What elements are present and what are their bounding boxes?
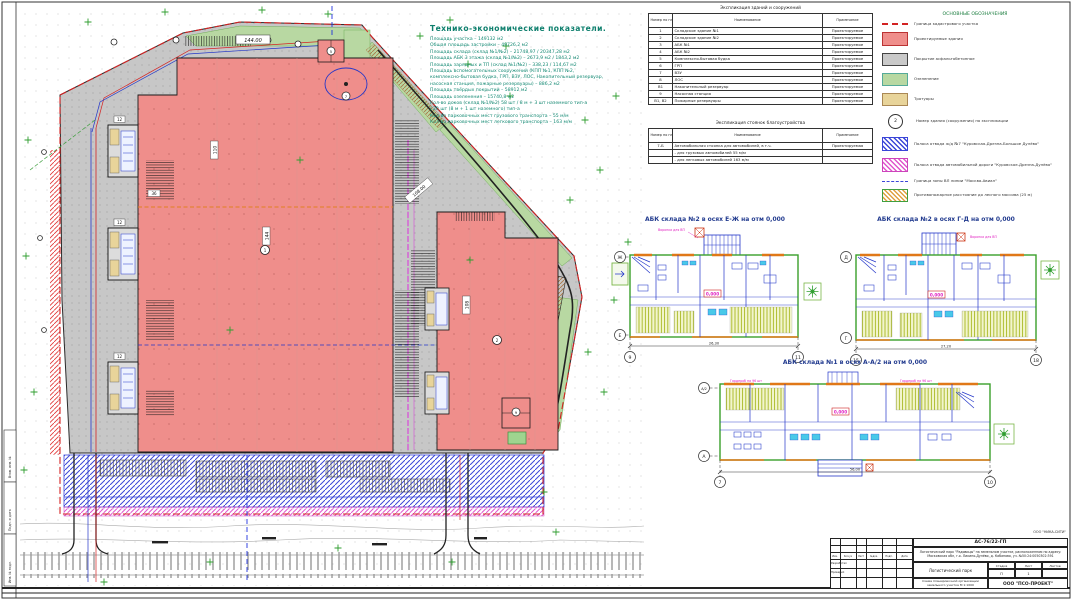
legend-item: Полоса отвода ж/д №7 "Куровская-Дрезна-Б… [882,137,1068,151]
col-header: Наименование [673,128,823,142]
project-description: Логистический парк "Радовицы" на земельн… [913,547,1068,562]
table-row: 5Комплексно-бытовая будкаПроектируемое [649,55,873,62]
legend-item: Озеленение [882,73,1068,86]
col-header: Номер по плану [649,13,673,27]
tep-line: Кол-во парковочных мест легкового трансп… [430,120,648,126]
table-cell: Комплексно-бытовая будка [673,55,823,62]
forest-distance-swatch [882,189,908,202]
table-row: 4АБК №2Проектируемое [649,48,873,55]
parking-table-title: Экспликация стоянок благоустройства [648,121,873,126]
object-name: Логистический парк [913,562,988,578]
svg-text:26,30: 26,30 [709,342,720,346]
title-block: ООО "НИКА-СИТИ" АС-76/22-ГП Логистически… [830,531,1068,589]
svg-text:18: 18 [1033,358,1039,364]
floorplan-note: Гардероб на 96 шт [730,379,762,383]
floorplan-note: Воронка для ВП [658,228,685,232]
table-cell [649,156,673,163]
table-cell: 6 [649,62,673,69]
svg-text:36: 36 [151,191,157,196]
svg-text:Г: Г [845,336,848,342]
sheets-header: Листов [1042,562,1068,569]
table-row: В1Накопительный резервуарПроектируемое [649,83,873,90]
role-label: Разработал [830,560,856,567]
buildings-table-title: Экспликация зданий и сооружений [648,6,873,11]
table-row: 3АБК №1Проектируемое [649,41,873,48]
sheet-header: Лист [1015,562,1042,569]
table-cell: 2 [649,34,673,41]
stage-header: Стадия [988,562,1015,569]
legend-item: Полоса отвода автомобильной дороги "Куро… [882,158,1068,172]
svg-text:А/2: А/2 [701,387,707,391]
table-cell: АБК №1 [673,41,823,48]
table-cell: 4 [649,48,673,55]
table-cell: Проектируемое [823,27,873,34]
sig-line [830,545,913,546]
legend-item: Граница зоны ВЛ линии "Москва-Авиал" [882,179,1068,184]
legend-item: Покрытие асфальтобетонное [882,53,1068,66]
sig-header: Кол.уч [840,553,856,559]
legend-item: 2 Номер здания (сооружения) по экспликац… [882,114,1068,129]
table-cell: Проектируемое [823,76,873,83]
table-cell: Складское здание №1 [673,27,823,34]
col-header: Примечание [823,13,873,27]
table-row: 2Складское здание №2Проектируемое [649,34,873,41]
paving-swatch [882,53,908,66]
building-swatch [882,32,908,46]
svg-text:10: 10 [987,480,993,486]
svg-text:12: 12 [117,354,123,359]
svg-text:12: 12 [117,117,123,122]
table-cell: 8 [649,76,673,83]
table-cell: Проектируемое [823,48,873,55]
table-row: В1, В2Пожарные резервуарыПроектируемое [649,97,873,104]
table-cell: 7-Б [649,142,673,149]
sidewalk-swatch [882,93,908,106]
svg-text:108: 108 [465,301,471,310]
sig-header: Подп. [882,553,896,559]
legend-title: ОСНОВНЫЕ ОБОЗНАЧЕНИЯ [882,12,1068,17]
table-cell: - для легковых автомобилей 163 м/м [673,156,823,163]
corner-reference: ООО "НИКА-СИТИ" [950,530,1066,537]
side-stamp: Взам. инв. № Подп. и дата Инв. № подл. [4,430,16,586]
level-label: 0,000 [930,293,943,298]
tep-title: Технико-экономические показатели. [430,24,648,33]
table-row: 8ЛОСПроектируемое [649,76,873,83]
floorplan-title: АБК склада №1 в осях А-А/2 на отм 0,000 [783,359,927,366]
table-cell: АБК №2 [673,48,823,55]
sig-line [866,538,867,589]
technical-indicators: Технико-экономические показатели. Площад… [430,24,648,127]
table-cell: В1, В2 [649,97,673,104]
table-cell: ЛОС [673,76,823,83]
table-cell [823,156,873,163]
svg-text:1: 1 [264,248,267,253]
role-label: Проверил [830,569,856,576]
floorplan-title: АБК склада №2 в осях Г-Д на отм 0,000 [877,216,1015,223]
legend-item: Граница кадастрового участка [882,22,1068,27]
svg-text:Е: Е [619,333,622,339]
svg-text:Ж: Ж [618,255,623,261]
side-label: Подп. и дата [8,509,12,531]
table-cell: Проектируемое [823,69,873,76]
side-label: Взам. инв. № [8,456,12,478]
table-row: 9Насосная станцияПроектируемое [649,90,873,97]
rail-corridor-swatch [882,137,908,151]
svg-text:110: 110 [213,146,219,155]
table-cell: 1 [649,27,673,34]
floorplan-abk2-gd: АБК склада №2 в осях Г-Д на отм 0,000 Во… [841,216,1060,366]
floorplan-abk1-a: АБК склада №1 в осях А-А/2 на отм 0,000 … [699,359,1015,488]
sheet-value: 1 [1015,569,1042,578]
table-cell: Проектируемое [823,41,873,48]
col-header: Примечание [823,128,873,142]
svg-text:2: 2 [496,338,499,343]
svg-text:56,00: 56,00 [850,468,861,472]
svg-text:27,20: 27,20 [941,345,952,349]
sig-header: Дата [896,553,913,559]
table-row: 7ВЗУПроектируемое [649,69,873,76]
svg-text:144: 144 [265,232,271,241]
greenery-swatch [882,73,908,86]
table-cell: Проектируемое [823,97,873,104]
table-cell: Проектируемая [823,142,873,149]
table-cell: 7 [649,69,673,76]
company-name: ООО "ПСО-ПРОЕКТ" [988,578,1068,589]
table-cell: ВЗУ [673,69,823,76]
svg-text:7: 7 [719,480,722,486]
floorplan-note: Воронка для ВП [970,235,997,239]
road-corridor-swatch [882,158,908,172]
dim-top: 144.00 [244,38,262,44]
table-cell: Проектируемое [823,90,873,97]
sheet-title: Схема планировочной организации земельно… [913,578,988,589]
table-row: 6ГРППроектируемое [649,62,873,69]
warehouse-2 [437,212,558,450]
table-cell: - для грузовых автомобилей 55 м/м [673,149,823,156]
table-cell: В1 [649,83,673,90]
col-header: Наименование [673,13,823,27]
table-row: - для легковых автомобилей 163 м/м [649,156,873,163]
table-cell: Насосная станция [673,90,823,97]
table-cell: Автомобильная стоянка для автомобилей, в… [673,142,823,149]
number-bubble-swatch: 2 [888,114,903,129]
table-cell: Проектируемое [823,55,873,62]
legend-item: Проектируемые здания [882,32,1068,46]
table-cell [649,149,673,156]
side-label: Инв. № подл. [8,561,12,583]
doc-number: АС-76/22-ГП [913,538,1068,547]
floorplan-note: Гардероб на 96 шт [900,379,932,383]
table-cell: 5 [649,55,673,62]
table-cell: Пожарные резервуары [673,97,823,104]
parking-table: Экспликация стоянок благоустройства Номе… [648,121,873,164]
sig-line [830,577,913,578]
sig-header: Лист [856,553,866,559]
cadastral-line-swatch [882,23,908,25]
table-cell: 3 [649,41,673,48]
table-cell: Проектируемое [823,34,873,41]
sig-line [882,538,883,589]
legend-item: Тротуары [882,93,1068,106]
legend-item: Противопожарное расстояние до лесного ма… [882,189,1068,202]
col-header: Номер по плану [649,128,673,142]
table-row: 1Складское здание №1Проектируемое [649,27,873,34]
table-row: 7-БАвтомобильная стоянка для автомобилей… [649,142,873,149]
floorplan-title: АБК склада №2 в осях Е-Ж на отм 0,000 [645,216,785,223]
table-cell: ГРП [673,62,823,69]
sig-line [896,538,897,589]
table-row: - для грузовых автомобилей 55 м/м [649,149,873,156]
table-cell: Накопительный резервуар [673,83,823,90]
table-cell [823,149,873,156]
buildings-table: Экспликация зданий и сооружений Номер по… [648,6,873,105]
sig-line [856,538,857,589]
table-cell: Проектируемое [823,62,873,69]
sig-header: Изм. [830,553,840,559]
table-cell: 9 [649,90,673,97]
sig-header: №док. [866,553,882,559]
svg-text:9: 9 [629,355,632,361]
svg-text:12: 12 [117,220,123,225]
table-cell: Проектируемое [823,83,873,90]
sheets-value [1042,569,1068,578]
level-label: 0,000 [706,292,719,297]
legend: ОСНОВНЫЕ ОБОЗНАЧЕНИЯ Граница кадастровог… [882,12,1068,208]
svg-text:Д: Д [844,255,848,261]
stage-value: П [988,569,1015,578]
drawing-sheet: Взам. инв. № Подп. и дата Инв. № подл. [0,0,1072,600]
table-cell: Складское здание №2 [673,34,823,41]
powerline-swatch [882,181,908,182]
level-label: 0,000 [834,410,847,415]
